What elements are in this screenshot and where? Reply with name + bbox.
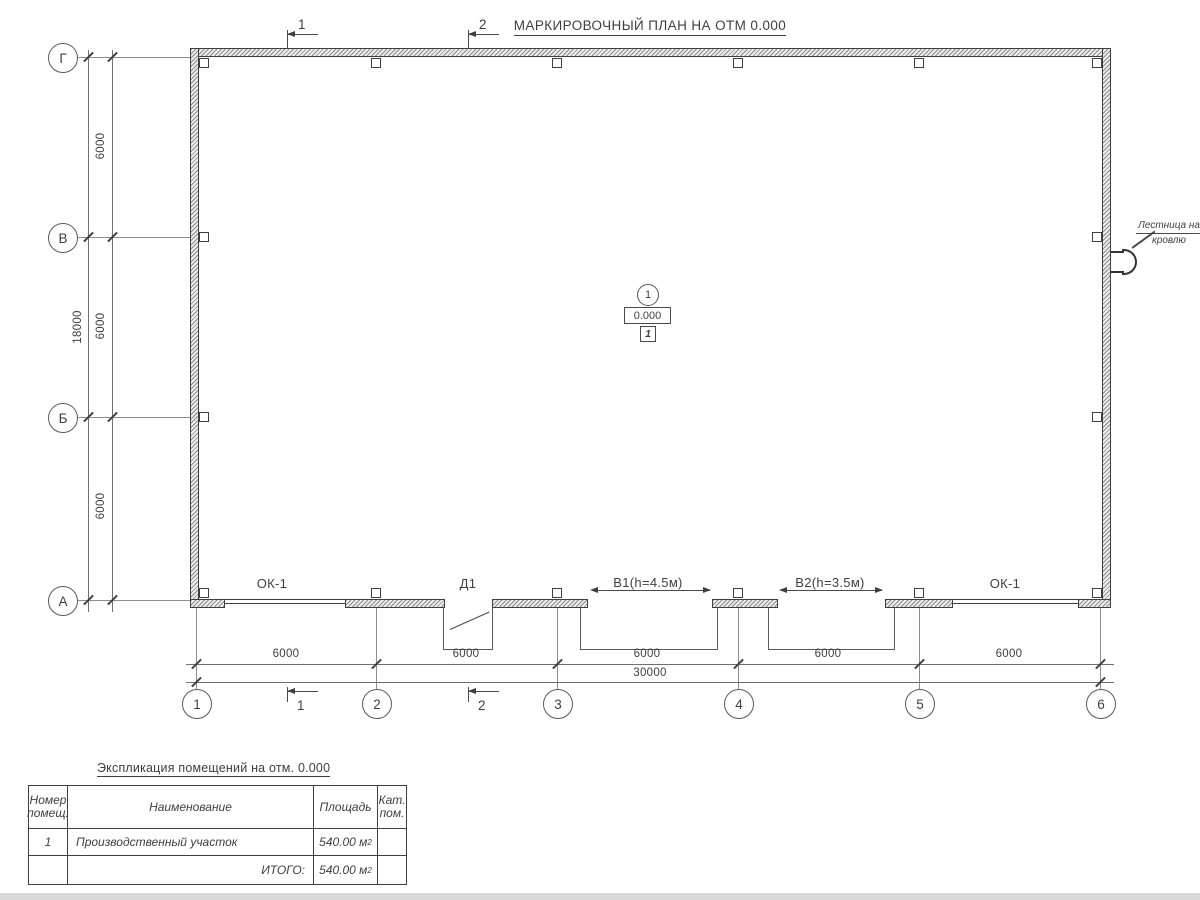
dim-line-left-segments	[112, 50, 113, 612]
column-mark	[733, 588, 743, 598]
axis-circle-5: 5	[905, 689, 935, 719]
total-label: ИТОГО:	[68, 856, 314, 884]
dim-bottom-total: 30000	[620, 667, 680, 679]
row1-name: Производственный участок	[68, 829, 314, 856]
row1-number: 1	[29, 829, 68, 856]
dim-line-bottom-segments	[186, 664, 1114, 665]
column-mark	[199, 412, 209, 422]
row1-category	[378, 829, 406, 856]
dim-line-left-total	[88, 50, 89, 612]
axis-circle-g: Г	[48, 43, 78, 73]
axis-circle-b: Б	[48, 403, 78, 433]
dim-line-bottom-total	[186, 682, 1114, 683]
zone-mark: 1	[640, 326, 656, 342]
wall-bottom-seg1	[190, 599, 225, 608]
axis-label-2: 2	[373, 697, 381, 712]
window-ok1-right	[953, 599, 1078, 604]
label-gate2: В2(h=3.5м)	[770, 575, 890, 590]
extension-line	[557, 608, 558, 689]
gate2-span-line	[781, 590, 882, 591]
axis-line-g	[76, 57, 190, 58]
column-mark	[552, 588, 562, 598]
wall-bottom-seg3	[492, 599, 588, 608]
extension-line	[376, 608, 377, 689]
section-2-number-bottom: 2	[478, 698, 486, 713]
axis-circle-3: 3	[543, 689, 573, 719]
axis-label-v: В	[58, 231, 67, 246]
wall-top	[190, 48, 1111, 57]
column-mark	[1092, 412, 1102, 422]
column-mark	[199, 232, 209, 242]
wall-bottom-seg4	[712, 599, 778, 608]
column-mark	[199, 58, 209, 68]
total-empty	[29, 856, 68, 884]
header-area: Площадь	[314, 786, 378, 829]
axis-label-4: 4	[735, 697, 743, 712]
wall-bottom-seg5	[885, 599, 953, 608]
plan-title: МАРКИРОВОЧНЫЙ ПЛАН НА ОТМ 0.000	[500, 18, 800, 33]
total-category	[378, 856, 406, 884]
header-category: Кат. пом.	[378, 786, 406, 829]
window-ok1-left	[225, 599, 345, 604]
section-2-number: 2	[479, 17, 487, 32]
gate2-recess	[768, 608, 895, 650]
section-1-number-bottom: 1	[297, 698, 305, 713]
axis-label-1: 1	[193, 697, 201, 712]
axis-label-3: 3	[554, 697, 562, 712]
axis-circle-4: 4	[724, 689, 754, 719]
wall-bottom-seg2	[345, 599, 445, 608]
axis-circle-2: 2	[362, 689, 392, 719]
axis-label-a: А	[58, 594, 67, 609]
section-1-number: 1	[298, 17, 306, 32]
axis-label-6: 6	[1097, 697, 1105, 712]
header-name: Наименование	[68, 786, 314, 829]
axis-line-b	[76, 417, 190, 418]
dim-bottom-segment-4: 6000	[798, 648, 858, 660]
column-mark	[1092, 58, 1102, 68]
label-door: Д1	[448, 576, 488, 591]
axis-circle-1: 1	[182, 689, 212, 719]
column-mark	[914, 588, 924, 598]
axis-label-g: Г	[59, 51, 66, 66]
column-mark	[733, 58, 743, 68]
sheet-bottom-edge	[0, 893, 1200, 900]
gate1-span-line	[592, 590, 710, 591]
ladder-label-line1: Лестница на	[1136, 219, 1200, 234]
dim-bottom-segment-1: 6000	[256, 648, 316, 660]
label-window-left: ОК-1	[232, 576, 312, 591]
label-window-right: ОК-1	[965, 576, 1045, 591]
dim-bottom-segment-3: 6000	[617, 648, 677, 660]
dim-left-total: 18000	[72, 297, 84, 357]
elevation-value: 0.000	[634, 310, 662, 322]
section-2-arrowhead-icon	[468, 31, 476, 37]
axis-label-5: 5	[916, 697, 924, 712]
section-1-arrowhead-icon	[287, 31, 295, 37]
section-1-arrowhead-bottom-icon	[287, 688, 295, 694]
column-mark	[1092, 588, 1102, 598]
label-gate1: В1(h=4.5м)	[588, 575, 708, 590]
extension-line	[1100, 608, 1101, 689]
dim-bottom-segment-5: 6000	[979, 648, 1039, 660]
ladder-cage-icon	[1122, 249, 1137, 275]
header-room-number: Номер помещ.	[29, 786, 68, 829]
dim-left-segment-1: 6000	[95, 116, 107, 176]
elevation-mark: 0.000	[624, 307, 671, 324]
axis-label-b: Б	[59, 411, 68, 426]
wall-right	[1102, 48, 1111, 608]
column-mark	[552, 58, 562, 68]
dim-left-segment-3: 6000	[95, 476, 107, 536]
ladder-label-line2: кровлю	[1136, 234, 1200, 247]
total-area: 540.00 м2	[314, 856, 378, 884]
gate1-recess	[580, 608, 718, 650]
axis-circle-6: 6	[1086, 689, 1116, 719]
wall-bottom-seg6	[1078, 599, 1111, 608]
row1-area: 540.00 м2	[314, 829, 378, 856]
zone-number: 1	[645, 328, 651, 340]
room-number-circle: 1	[637, 284, 659, 306]
dim-left-segment-2: 6000	[95, 296, 107, 356]
dim-bottom-segment-2: 6000	[436, 648, 496, 660]
axis-circle-a: А	[48, 586, 78, 616]
column-mark	[371, 588, 381, 598]
table-title: Экспликация помещений на отм. 0.000	[97, 761, 330, 775]
wall-left	[190, 48, 199, 608]
axis-line-v	[76, 237, 190, 238]
column-mark	[1092, 232, 1102, 242]
section-2-arrowhead-bottom-icon	[468, 688, 476, 694]
room-number: 1	[645, 289, 651, 301]
column-mark	[199, 588, 209, 598]
extension-line	[738, 608, 739, 689]
extension-line	[919, 608, 920, 689]
ladder-label: Лестница на кровлю	[1136, 219, 1200, 247]
extension-line	[196, 608, 197, 689]
room-schedule-table: Номер помещ. Наименование Площадь Кат. п…	[28, 785, 407, 885]
drawing-sheet: МАРКИРОВОЧНЫЙ ПЛАН НА ОТМ 0.000 1 2 6000…	[0, 0, 1200, 900]
column-mark	[371, 58, 381, 68]
column-mark	[914, 58, 924, 68]
axis-line-a	[76, 600, 190, 601]
axis-circle-v: В	[48, 223, 78, 253]
